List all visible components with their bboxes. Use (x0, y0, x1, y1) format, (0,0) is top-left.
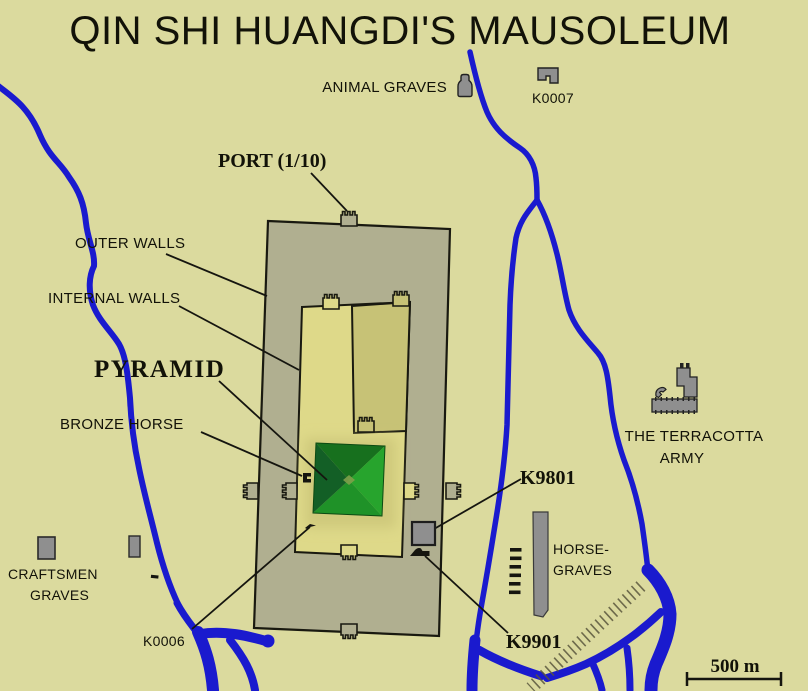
gate-west-outer (244, 483, 259, 499)
gate-north-inner-east (393, 292, 409, 307)
gate-east-outer (446, 483, 461, 499)
map-canvas: QIN SHI HUANGDI'S MAUSOLEUM ANIMAL GRAVE… (0, 0, 808, 691)
gate-east-inner (404, 483, 419, 499)
ne-courtyard (352, 302, 410, 433)
terracotta-pit-tooth (686, 363, 690, 368)
label-internal-walls: INTERNAL WALLS (48, 290, 180, 307)
label-scale: 500 m (710, 656, 759, 677)
grave-dash (510, 565, 522, 569)
river-stub-2 (627, 648, 630, 690)
label-horse-graves-line2: GRAVES (553, 562, 612, 578)
label-pyramid: PYRAMID (94, 356, 225, 383)
river-left-delta-pool (262, 635, 275, 648)
label-craftsmen-line2: GRAVES (30, 587, 89, 603)
label-horse-graves-line1: HORSE- (553, 541, 609, 557)
label-animal-graves: ANIMAL GRAVES (322, 79, 447, 96)
craftsmen-grave-pit-icon (38, 537, 55, 559)
terracotta-pit-tooth (680, 363, 684, 368)
gate-ne-courtyard-south (358, 418, 374, 433)
gate-north-outer (341, 212, 357, 227)
grave-dash (510, 574, 522, 578)
mausoleum-map: QIN SHI HUANGDI'S MAUSOLEUM ANIMAL GRAVE… (0, 0, 808, 691)
gate-west-inner (283, 483, 298, 499)
craftsmen-grave-pit-icon-2 (129, 536, 140, 557)
grave-dash (509, 582, 521, 586)
label-k0007: K0007 (532, 90, 574, 106)
label-k0006: K0006 (143, 633, 185, 649)
terracotta-pit-bar (652, 399, 697, 412)
k9801-pit-icon (412, 522, 435, 545)
label-craftsmen-line1: CRAFTSMEN (8, 566, 98, 582)
label-k9901: K9901 (506, 631, 562, 653)
gate-south-outer (341, 624, 357, 639)
label-terracotta-army-line1: THE TERRACOTTA (625, 428, 764, 445)
grave-dash (509, 591, 521, 595)
pyramid (313, 443, 385, 516)
horse-graves-bar-icon (533, 512, 548, 617)
map-title: QIN SHI HUANGDI'S MAUSOLEUM (69, 9, 730, 53)
gate-south-inner (341, 545, 357, 560)
label-outer-walls: OUTER WALLS (75, 235, 185, 252)
label-port: PORT (1/10) (218, 150, 326, 172)
label-bronze-horse: BRONZE HORSE (60, 416, 184, 433)
label-k9801: K9801 (520, 467, 576, 489)
grave-dash (510, 548, 522, 552)
gate-north-inner-west (323, 295, 339, 310)
river-middle-delta (472, 640, 475, 690)
grave-dash (510, 557, 522, 561)
label-terracotta-army-line2: ARMY (660, 450, 705, 467)
